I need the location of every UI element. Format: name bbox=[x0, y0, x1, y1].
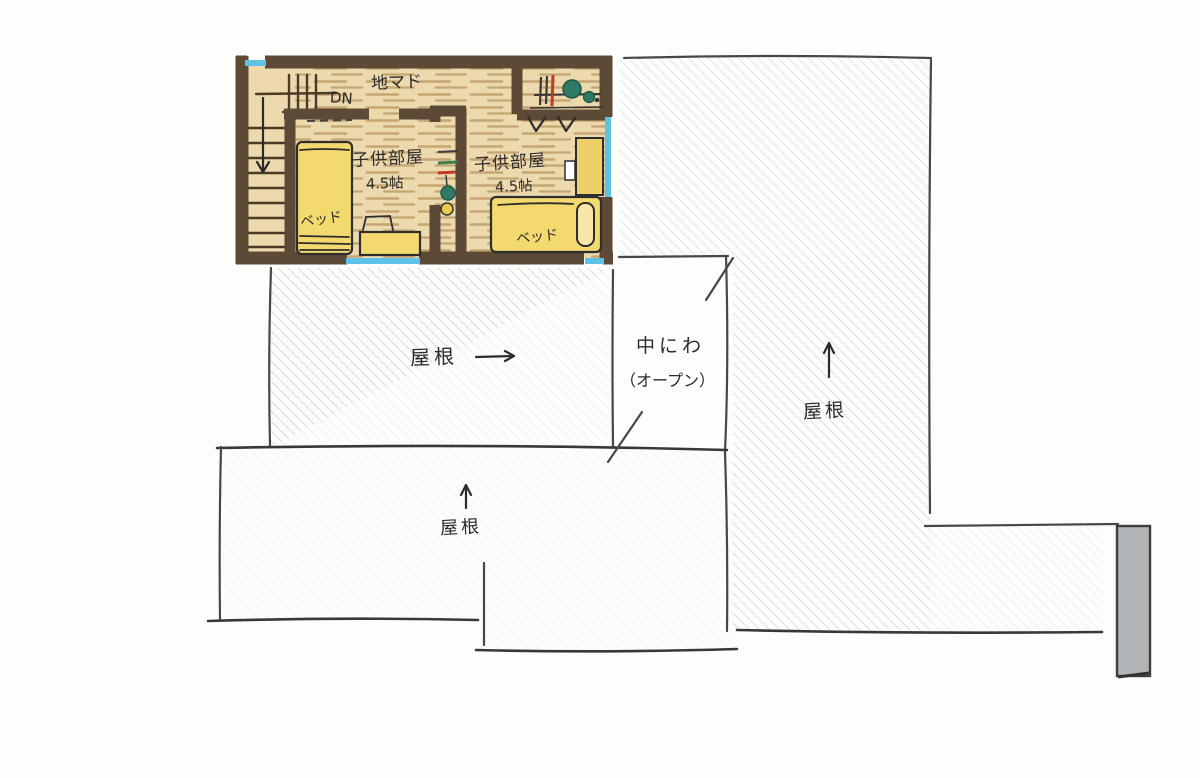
room-left-area: 4.5帖 bbox=[366, 175, 404, 193]
small-dot bbox=[595, 98, 599, 102]
red-shelf-mark bbox=[438, 172, 456, 173]
pencil-line bbox=[613, 270, 614, 447]
pencil-line bbox=[624, 56, 931, 58]
floorplan-sketch: 地マド DN 子供部屋 4.5帖 ベッド 子供部屋 4.5帖 ベッド 屋根 中に… bbox=[0, 0, 1200, 778]
courtyard-label: 中にわ bbox=[636, 335, 705, 357]
room-left-name: 子供部屋 bbox=[352, 147, 425, 171]
roof-label-right: 屋根 bbox=[803, 399, 848, 423]
pencil-line bbox=[208, 619, 478, 621]
hanger-mark bbox=[540, 77, 541, 105]
yellow-ornament bbox=[441, 203, 453, 215]
teal-ornament bbox=[441, 186, 455, 200]
roof-hatch-step bbox=[931, 526, 1103, 632]
pencil-line bbox=[269, 268, 271, 446]
roof-label-bottom: 屋根 bbox=[440, 516, 483, 539]
teal-hanger-item bbox=[563, 80, 581, 98]
teal-hanger-item bbox=[584, 92, 595, 103]
right-arrow bbox=[476, 356, 513, 357]
courtyard-corner-slash bbox=[706, 258, 733, 300]
hanger-mark bbox=[546, 76, 547, 104]
floor-window-label: 地マド bbox=[371, 72, 423, 94]
chimney-wall bbox=[1117, 526, 1150, 676]
pencil-line bbox=[220, 447, 221, 620]
floorplan-sketch-page: 地マド DN 子供部屋 4.5帖 ベッド 子供部屋 4.5帖 ベッド 屋根 中に… bbox=[0, 0, 1200, 778]
stairs-down-label: DN bbox=[329, 88, 353, 108]
courtyard-note: （オープン） bbox=[620, 371, 715, 390]
roof-hatch-right-upper bbox=[620, 58, 931, 256]
side-cabinet bbox=[576, 138, 603, 195]
pencil-line bbox=[925, 524, 1118, 526]
roof-hatch-bottom-mid bbox=[484, 450, 737, 650]
desk bbox=[360, 232, 420, 255]
cabinet-knob bbox=[565, 161, 575, 180]
roof-hatch-right-main bbox=[733, 256, 931, 631]
room-right-area: 4.5帖 bbox=[495, 177, 533, 196]
red-hanger-mark bbox=[552, 75, 553, 106]
green-shelf-mark bbox=[438, 162, 458, 163]
stair-railing bbox=[256, 93, 336, 94]
roof-label-middle: 屋根 bbox=[410, 344, 459, 370]
upper-floor-plan: 地マド DN 子供部屋 4.5帖 ベッド 子供部屋 4.5帖 ベッド bbox=[236, 56, 613, 264]
pillow bbox=[577, 203, 594, 246]
pencil-line bbox=[619, 256, 728, 257]
